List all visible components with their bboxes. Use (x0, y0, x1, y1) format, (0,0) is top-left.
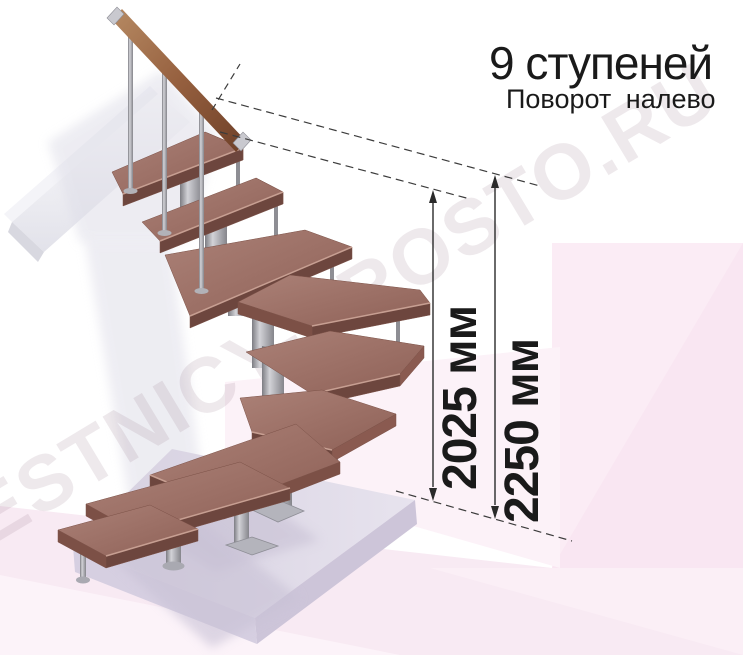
title-turn-direction: Поворот налево (506, 86, 716, 113)
dimension-label-stair-height: 2025 мм (437, 306, 485, 490)
baluster (162, 66, 167, 234)
baluster-foot (158, 230, 172, 236)
staircase-diagram: LESTNICY-PROSTO.RU (0, 0, 743, 655)
leg-foot (76, 577, 90, 584)
leg-foot (163, 562, 185, 571)
baluster-foot (124, 188, 138, 194)
title-steps-count: 9 ступеней (489, 40, 712, 86)
baluster (128, 26, 133, 190)
baluster-foot (195, 288, 209, 294)
dimension-label-total-height: 2250 мм (499, 339, 547, 523)
baluster (199, 112, 204, 292)
